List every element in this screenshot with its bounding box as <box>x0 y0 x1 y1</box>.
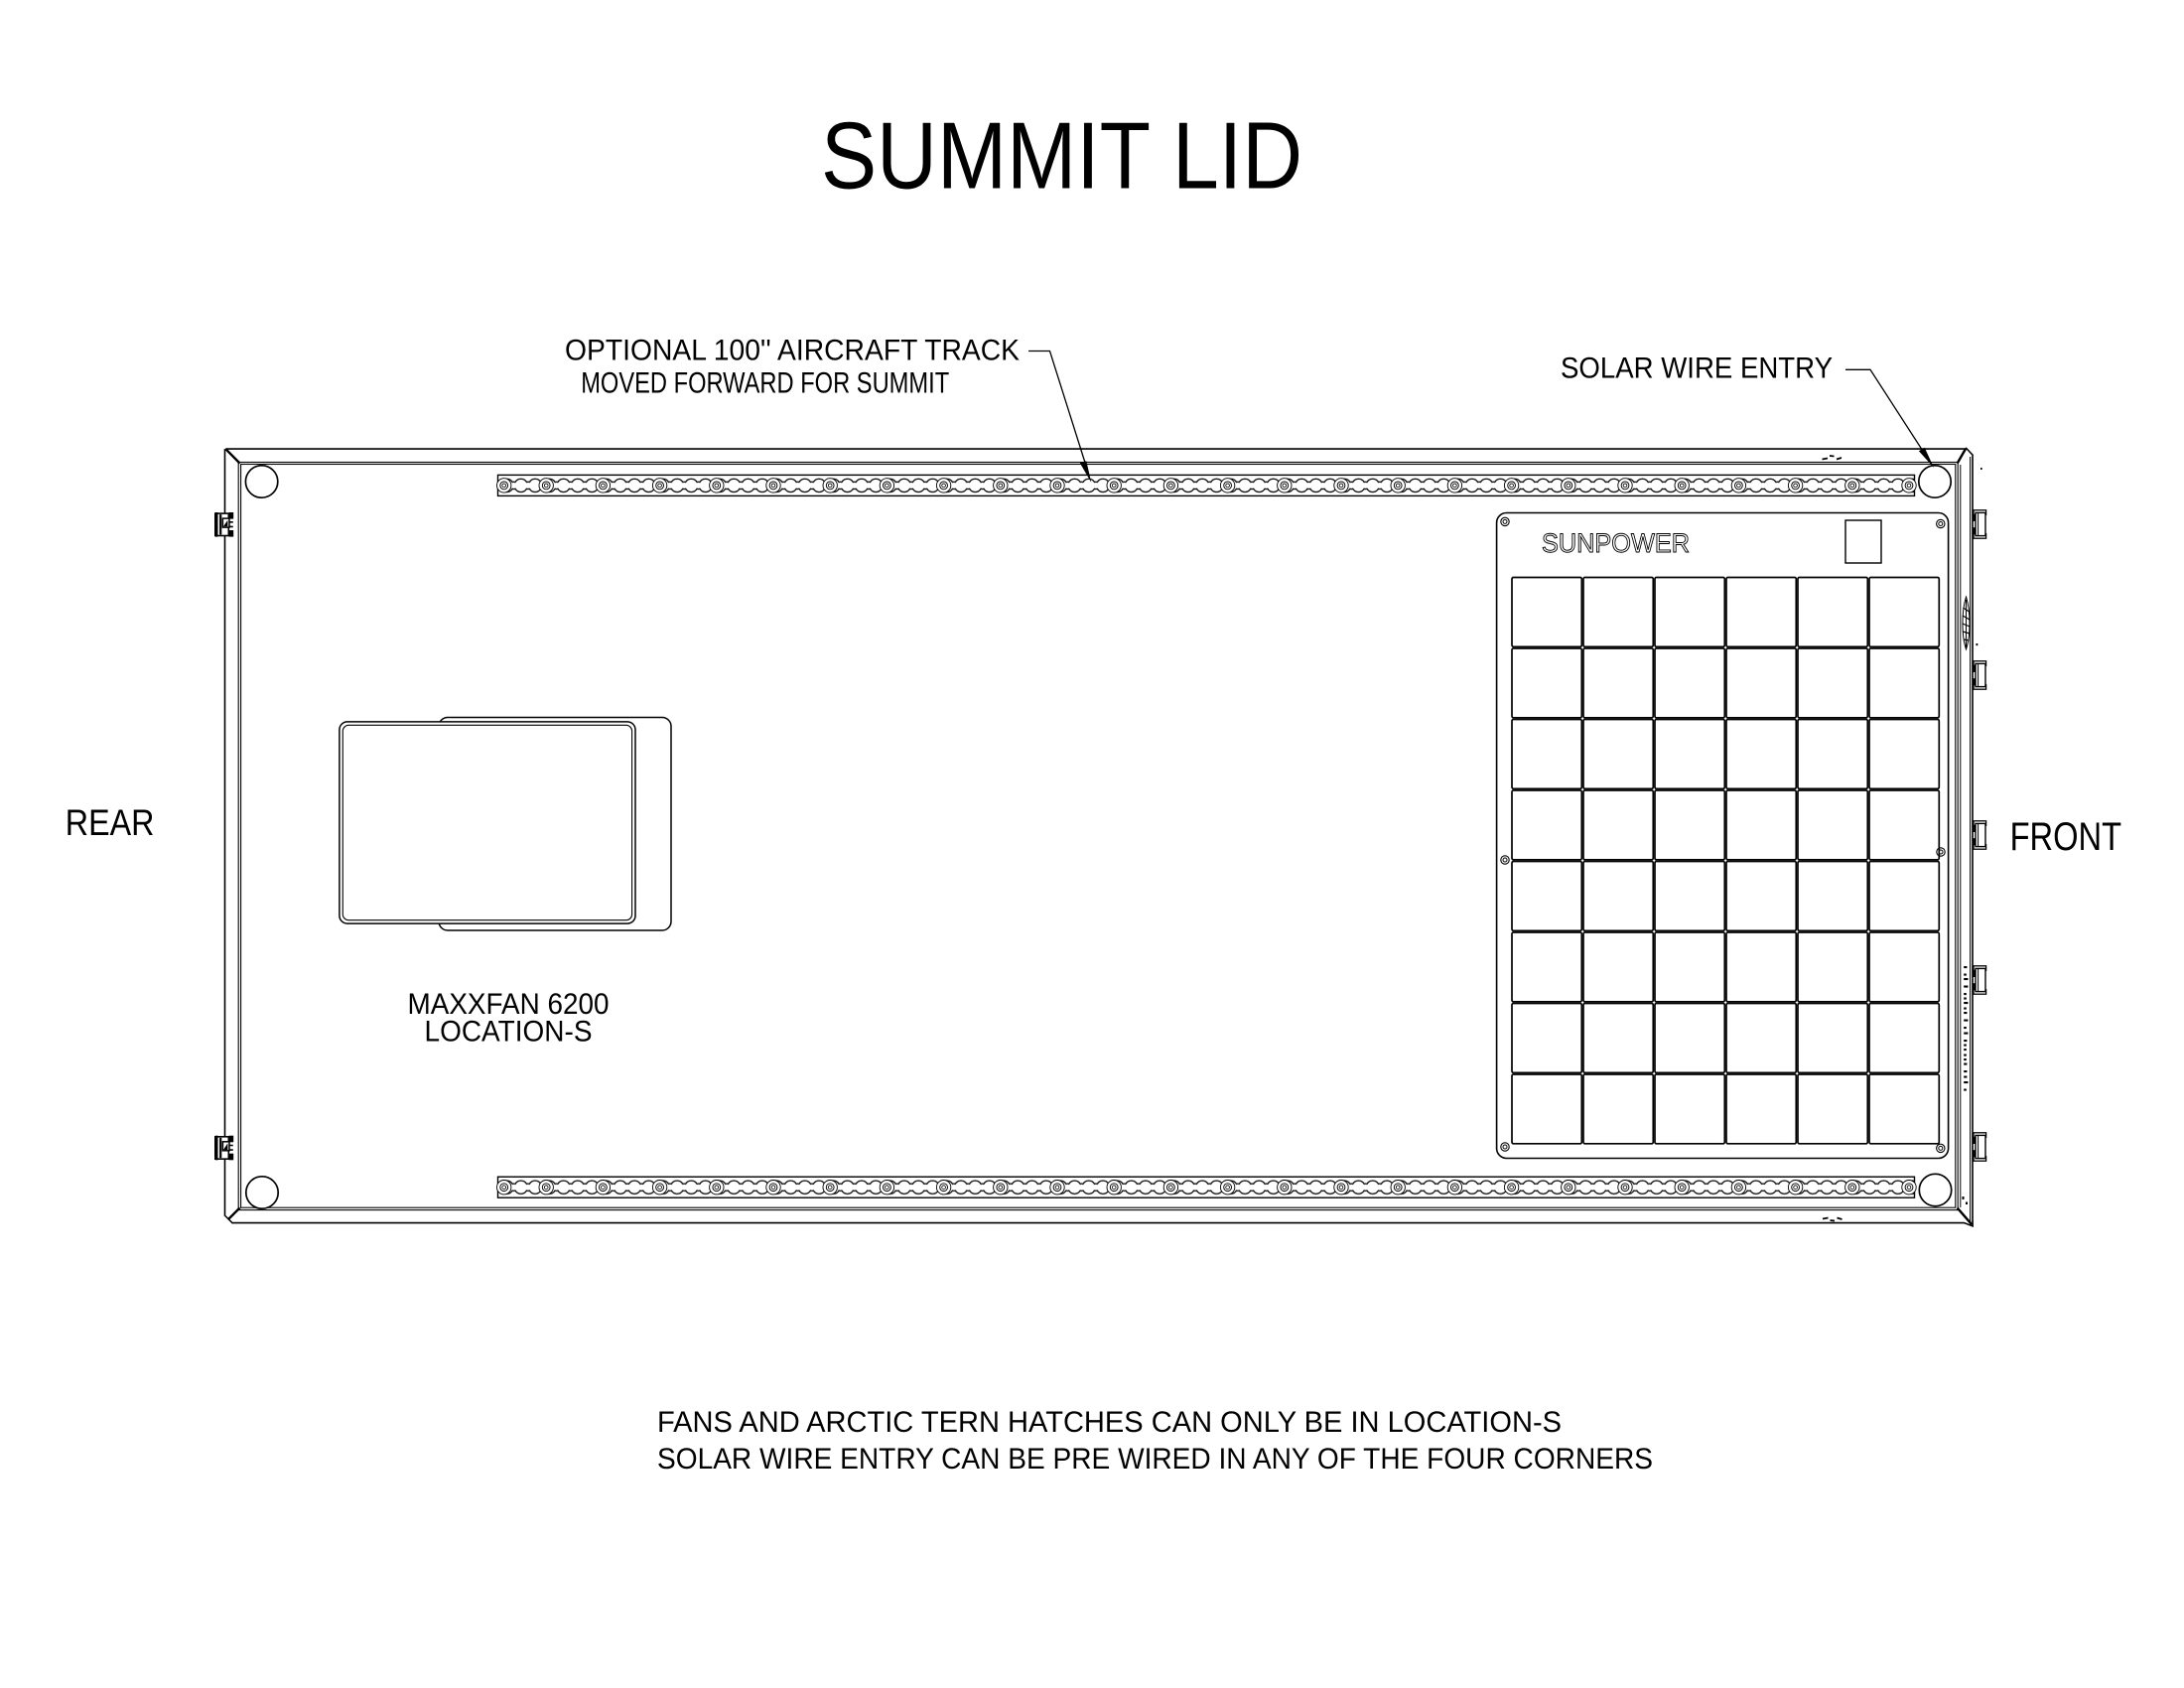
svg-text:OPTIONAL 100'' AIRCRAFT TRACK: OPTIONAL 100'' AIRCRAFT TRACK <box>565 335 1020 367</box>
svg-text:SUNPOWER: SUNPOWER <box>1542 528 1690 558</box>
svg-text:REAR: REAR <box>66 802 155 843</box>
svg-text:MOVED FORWARD FOR SUMMIT: MOVED FORWARD FOR SUMMIT <box>581 367 949 400</box>
svg-text:SOLAR WIRE ENTRY CAN BE PRE WI: SOLAR WIRE ENTRY CAN BE PRE WIRED IN ANY… <box>657 1443 1653 1476</box>
svg-text:FANS AND ARCTIC TERN HATCHES C: FANS AND ARCTIC TERN HATCHES CAN ONLY BE… <box>657 1406 1562 1439</box>
svg-text:LOCATION-S: LOCATION-S <box>425 1015 593 1048</box>
svg-text:SUMMIT LID: SUMMIT LID <box>821 103 1302 210</box>
svg-text:SOLAR WIRE ENTRY: SOLAR WIRE ENTRY <box>1561 352 1833 385</box>
svg-text:FRONT: FRONT <box>2010 815 2122 859</box>
